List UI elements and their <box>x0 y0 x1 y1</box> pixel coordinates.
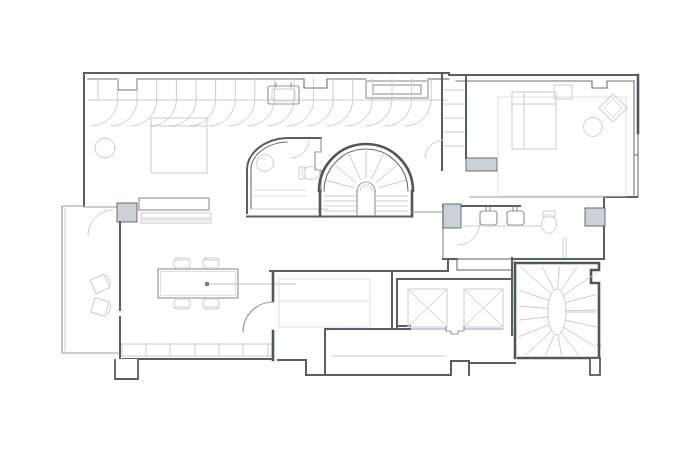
corridor <box>115 329 515 379</box>
living-room <box>243 259 448 360</box>
shower-lines <box>252 190 306 196</box>
floor-plan-drawing <box>0 0 700 454</box>
chair <box>174 299 190 309</box>
sideboard <box>139 198 209 210</box>
opening <box>457 259 512 270</box>
wall-step <box>590 358 600 375</box>
shelves <box>444 90 464 146</box>
chair <box>203 299 219 309</box>
chair <box>174 258 190 268</box>
arched-newel <box>357 191 375 215</box>
door-swing <box>425 140 443 158</box>
central-bathroom <box>247 138 328 213</box>
rotated-armchair <box>599 94 627 122</box>
rotated-chair <box>90 273 113 294</box>
door-swing <box>291 141 309 158</box>
bed <box>512 92 556 149</box>
right-bathroom <box>443 204 605 270</box>
wall-pier <box>443 204 461 228</box>
right-bedroom <box>470 85 627 197</box>
straight-treads <box>324 196 408 211</box>
dining-room <box>120 222 296 360</box>
window-mullions <box>122 344 272 356</box>
closet-shaft <box>425 75 497 259</box>
wall-block <box>466 158 497 171</box>
dining-table <box>158 269 238 298</box>
chair <box>203 258 219 268</box>
basin <box>507 211 524 225</box>
rug <box>498 97 626 196</box>
wall-pier <box>115 359 138 379</box>
master-bedroom <box>84 79 447 235</box>
lift-x-symbol <box>464 289 503 327</box>
round-stool <box>95 138 115 158</box>
main-staircase <box>247 144 443 216</box>
window-recess <box>366 81 428 98</box>
winder-staircase <box>515 263 600 375</box>
rotated-chair <box>91 298 113 318</box>
balcony <box>62 206 118 353</box>
oval-newel <box>548 289 566 335</box>
door-swing <box>88 210 113 235</box>
pendant-light <box>205 282 210 287</box>
round-basin <box>257 155 274 172</box>
floor-plan-canvas <box>0 0 700 454</box>
basin <box>480 211 497 225</box>
lift-x-symbol <box>408 289 447 327</box>
daybed-sofa <box>279 279 370 327</box>
wall-pier <box>117 203 137 222</box>
round-table <box>584 118 603 137</box>
wall-pier <box>585 208 605 226</box>
door-swing <box>243 302 273 332</box>
